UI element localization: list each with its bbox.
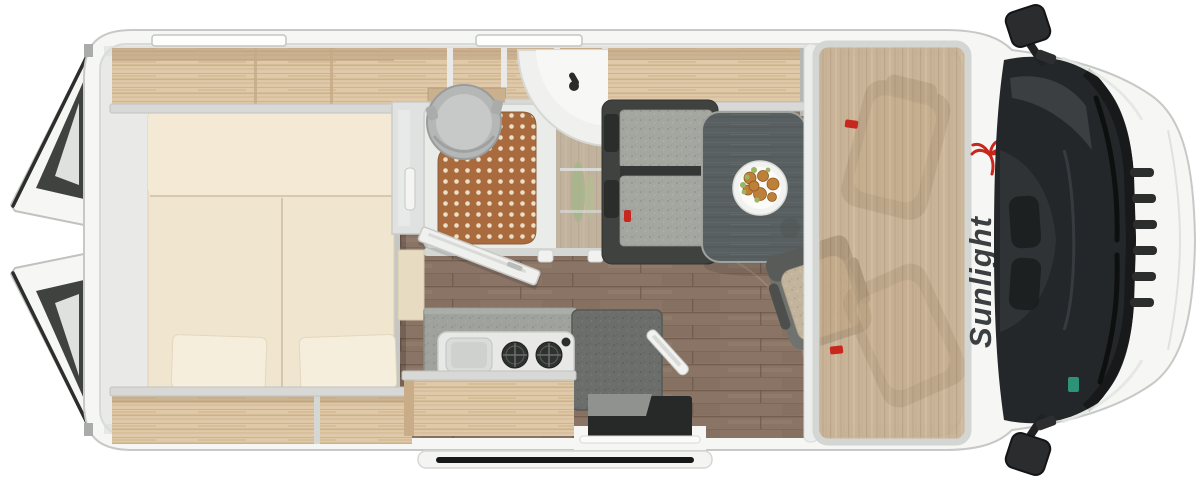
seatbelt-marker-bottom <box>830 345 844 354</box>
seat-through-glass-1 <box>1008 195 1042 249</box>
brand-logo-text: Sunlight <box>963 215 998 348</box>
exterior-step-board <box>418 451 712 468</box>
pillow-left <box>171 334 267 391</box>
food-plate <box>733 161 787 215</box>
floorplan-stage: Sunlight <box>0 0 1200 481</box>
side-cabinet <box>398 250 424 320</box>
mattress-head-section <box>148 110 394 196</box>
rear-doors <box>11 47 95 432</box>
camper-floorplan-svg: Sunlight <box>0 0 1200 481</box>
hook-right <box>588 250 603 262</box>
dinette-bench <box>602 100 718 264</box>
step-mat <box>588 394 652 416</box>
hook-left <box>538 250 553 262</box>
door-hinge-bottom <box>84 423 93 436</box>
cab-area <box>804 44 972 442</box>
burner-right-icon <box>536 342 562 368</box>
bathroom <box>392 48 628 290</box>
door-hinge-top <box>84 44 93 57</box>
rear-bed <box>148 110 406 392</box>
door-threshold <box>580 436 700 443</box>
burner-left-icon <box>502 342 528 368</box>
hob-knob <box>562 338 571 347</box>
entry-area <box>574 394 706 450</box>
seatbelt-buckle <box>624 210 631 222</box>
overhead-shelf-bed-bottom <box>110 387 414 444</box>
shower-door-handle <box>405 168 415 210</box>
roof-window-strip-right <box>476 35 582 46</box>
windshield-sticker <box>1068 377 1079 392</box>
seat-through-glass-2 <box>1008 257 1042 311</box>
bench-cushion-bottom <box>620 176 712 246</box>
over-cab-panel <box>816 44 968 442</box>
pillow-right <box>299 334 397 391</box>
rear-door-bottom-icon <box>11 253 95 432</box>
overhead-shelf-bed-top <box>110 48 396 113</box>
headrest-bottom <box>604 180 619 218</box>
kitchen-lower-shelf <box>402 371 576 436</box>
bench-cushion-top <box>620 110 712 168</box>
roof-window-strip-left <box>152 35 286 46</box>
headrest-top <box>604 114 619 152</box>
rear-door-top-icon <box>11 47 95 226</box>
